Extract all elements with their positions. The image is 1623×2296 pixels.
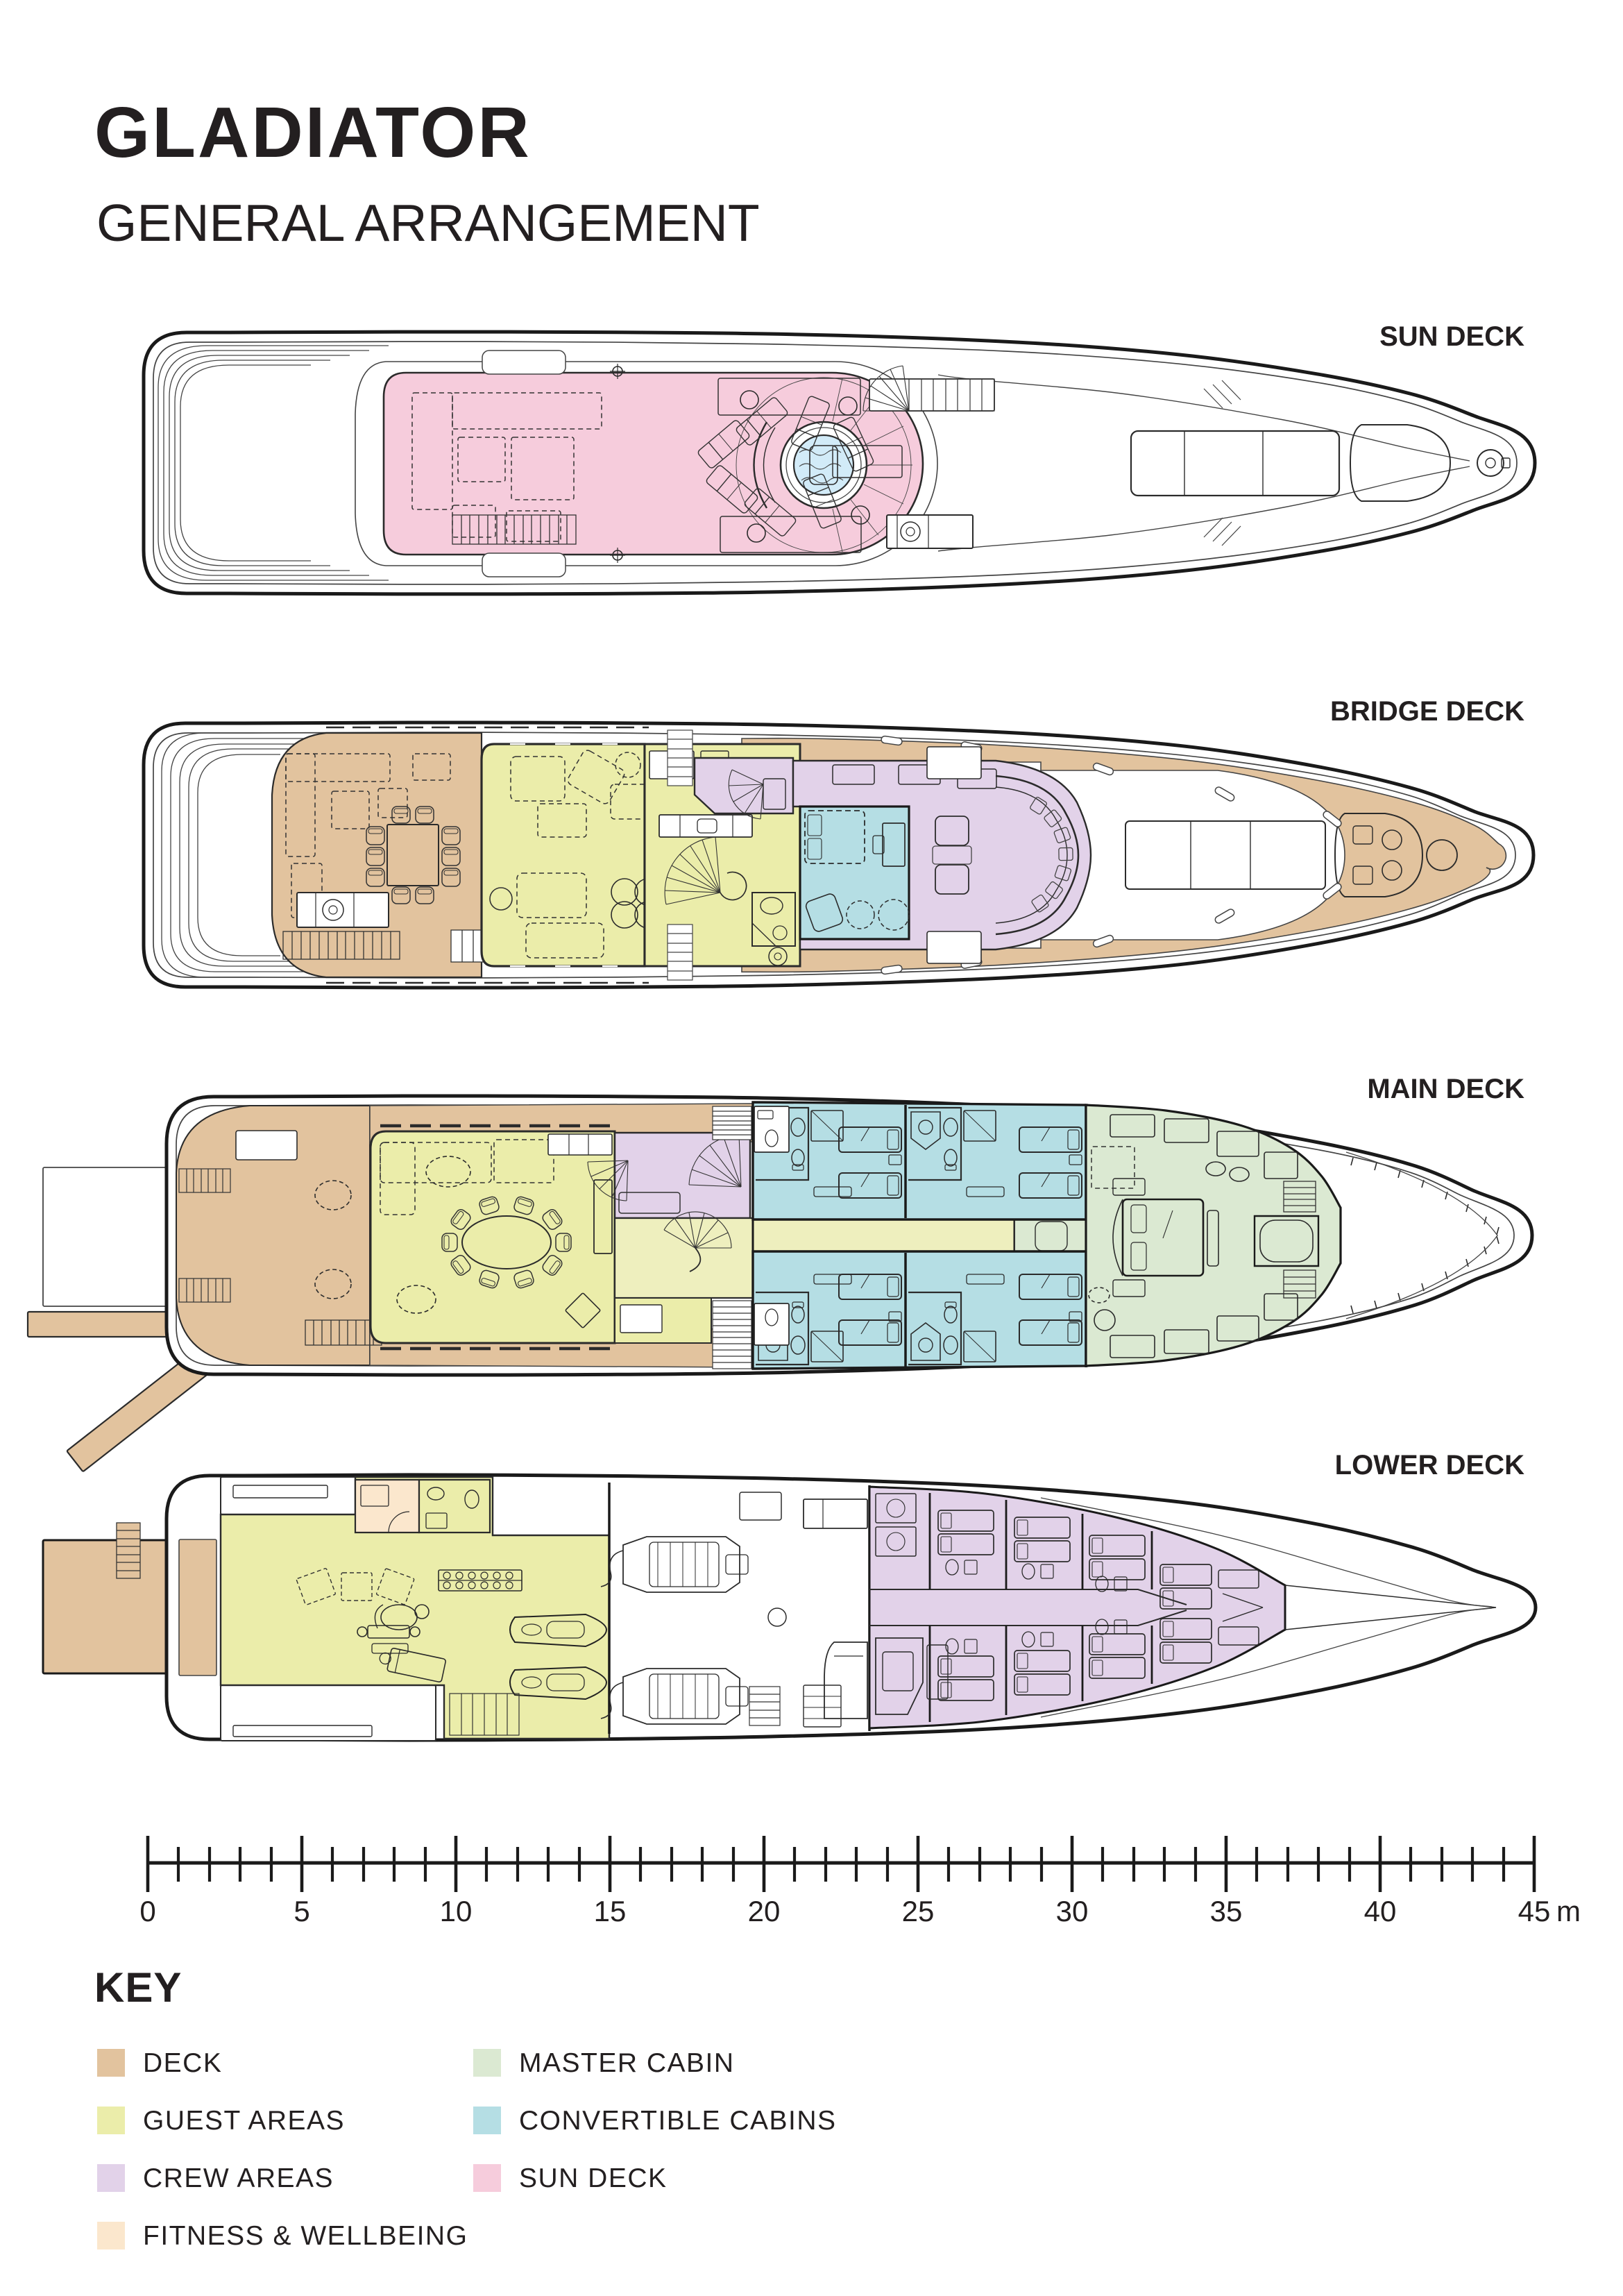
svg-text:KEY: KEY (94, 1964, 182, 2011)
svg-text:FITNESS & WELLBEING: FITNESS & WELLBEING (143, 2221, 468, 2251)
svg-text:15: 15 (594, 1895, 627, 1927)
svg-text:45: 45 (1518, 1895, 1551, 1927)
svg-text:GENERAL ARRANGEMENT: GENERAL ARRANGEMENT (96, 194, 760, 252)
svg-text:GLADIATOR: GLADIATOR (94, 92, 532, 172)
svg-text:MASTER CABIN: MASTER CABIN (519, 2048, 735, 2078)
svg-text:MAIN DECK: MAIN DECK (1367, 1074, 1524, 1104)
svg-text:20: 20 (748, 1895, 781, 1927)
svg-text:BRIDGE DECK: BRIDGE DECK (1330, 696, 1524, 727)
svg-text:SUN DECK: SUN DECK (519, 2163, 668, 2193)
svg-text:SUN DECK: SUN DECK (1379, 321, 1524, 352)
svg-text:GUEST AREAS: GUEST AREAS (143, 2106, 345, 2136)
svg-text:10: 10 (440, 1895, 473, 1927)
svg-text:DECK: DECK (143, 2048, 222, 2078)
svg-text:40: 40 (1364, 1895, 1397, 1927)
svg-text:0: 0 (139, 1895, 155, 1927)
svg-text:CREW AREAS: CREW AREAS (143, 2163, 334, 2193)
svg-text:CONVERTIBLE CABINS: CONVERTIBLE CABINS (519, 2106, 837, 2136)
svg-text:35: 35 (1210, 1895, 1243, 1927)
svg-text:25: 25 (902, 1895, 935, 1927)
svg-text:LOWER DECK: LOWER DECK (1335, 1450, 1524, 1480)
svg-text:m: m (1556, 1895, 1581, 1927)
svg-text:5: 5 (294, 1895, 309, 1927)
svg-text:30: 30 (1056, 1895, 1089, 1927)
